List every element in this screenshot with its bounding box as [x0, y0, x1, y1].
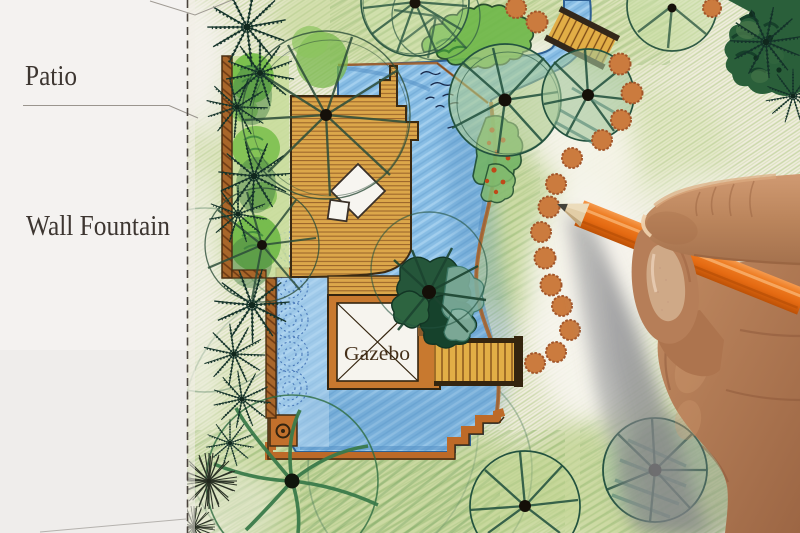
svg-text:Wall Fountain: Wall Fountain	[26, 210, 170, 242]
svg-text:Gazebo: Gazebo	[344, 343, 410, 365]
svg-text:Patio: Patio	[25, 60, 77, 92]
